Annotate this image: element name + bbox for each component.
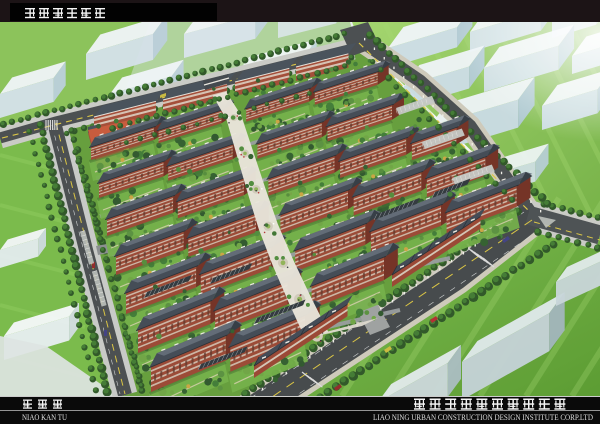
svg-text:NIAO KAN TU: NIAO KAN TU [22,413,67,422]
svg-text:LIAO NING URBAN CONSTRUCTION D: LIAO NING URBAN CONSTRUCTION DESIGN INST… [373,413,593,422]
